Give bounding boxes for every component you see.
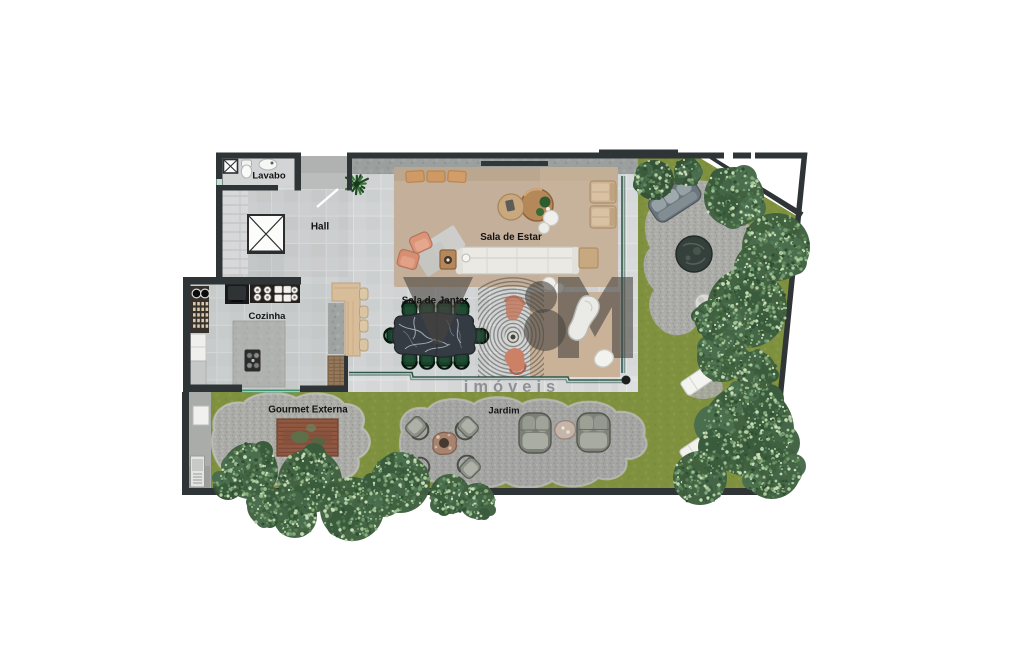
svg-text:Cozinha: Cozinha [249,311,287,322]
svg-text:Gourmet Externa: Gourmet Externa [268,405,348,416]
svg-text:Sala de Estar: Sala de Estar [480,232,542,243]
svg-text:Sala de Jantar: Sala de Jantar [402,296,469,307]
svg-text:Hall: Hall [311,222,330,233]
svg-text:Jardim: Jardim [488,406,519,417]
svg-text:imóveis: imóveis [464,378,560,396]
svg-text:Lavabo: Lavabo [252,171,285,182]
